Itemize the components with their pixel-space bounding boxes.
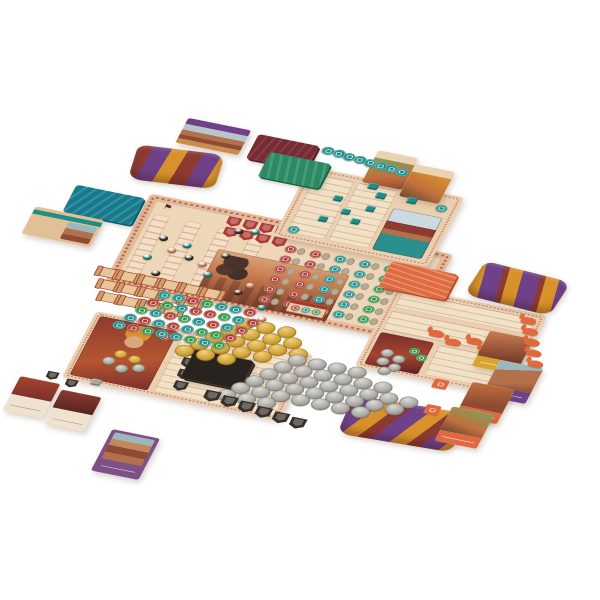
teal-bead-token: [142, 254, 153, 261]
green-disc-token: [194, 327, 210, 337]
teal-cube-token: [375, 192, 388, 200]
gray_oval-oval-token: [315, 263, 326, 271]
teal-disc-token: [286, 225, 301, 234]
red-disc-token: [233, 325, 249, 335]
gray_oval-oval-token: [344, 313, 355, 321]
teal-disc-token: [197, 337, 213, 347]
teal-disc-token: [219, 322, 235, 332]
gray_oval-oval-token: [365, 273, 376, 281]
teal-disc-token: [151, 318, 167, 328]
green-disc-token: [139, 326, 155, 336]
card-text-line: [101, 465, 136, 473]
gray_oval-oval-token: [349, 303, 360, 311]
red-disc-token: [185, 296, 201, 306]
green-disc-token: [216, 312, 232, 322]
teal-disc-token: [156, 290, 172, 300]
card-text-line: [52, 418, 83, 425]
black-shield-token: [171, 380, 189, 392]
teal-disc-token: [300, 306, 311, 313]
card-art: [52, 390, 101, 416]
gold-coin-token: [113, 349, 129, 359]
teal-disc-token: [191, 317, 207, 327]
gray_oval-oval-token: [340, 268, 351, 276]
orange-camel-token: [526, 359, 545, 369]
gray_oval-oval-token: [299, 293, 310, 301]
teal-cube-token: [406, 197, 419, 205]
gray_oval-oval-token: [305, 283, 316, 291]
gray_oval-oval-token: [359, 283, 370, 291]
gray_oval-oval-token: [310, 273, 321, 281]
teal-disc-token: [173, 303, 189, 313]
silver-cube-token: [90, 378, 103, 386]
red-disc-token: [245, 318, 261, 328]
black-shield-token: [253, 406, 274, 420]
teal-bead-token: [181, 242, 192, 249]
orange-camel-token: [444, 338, 463, 348]
green-disc-token: [159, 300, 175, 310]
teal-bead-token: [250, 228, 261, 235]
green-disc-token: [208, 330, 224, 340]
photo-table: ⚑ ✕: [0, 66, 600, 535]
red-disc-token: [162, 311, 178, 321]
card-art: [101, 432, 155, 466]
green-disc-token: [182, 334, 198, 344]
green-disc-token: [211, 340, 227, 350]
gray_oval-oval-token: [324, 298, 335, 306]
gray_oval-oval-token: [329, 288, 340, 296]
gray_oval-oval-token: [335, 278, 346, 286]
teal-disc-token: [179, 324, 195, 334]
board-game-product-photo: ⚑ ✕: [0, 0, 600, 600]
red-disc-token: [242, 307, 258, 317]
silver-coin-s-token: [101, 356, 117, 366]
red-disc-token: [205, 319, 221, 329]
teal-cube-token: [367, 182, 380, 190]
teal-disc-token: [170, 293, 186, 303]
red-disc-token: [165, 321, 181, 331]
black-shield-token: [44, 371, 60, 381]
gold-coin-token: [127, 355, 143, 365]
salmon-bead-token: [166, 247, 177, 254]
gray_oval-oval-token: [354, 293, 365, 301]
black-shield-token: [270, 411, 291, 425]
teal-disc-token: [227, 304, 243, 314]
market-cell: [331, 310, 356, 322]
gray_oval-oval-token: [370, 263, 381, 271]
black-bead-token: [183, 254, 194, 261]
teal-bead-token: [202, 271, 213, 278]
teal-disc-token: [434, 204, 449, 213]
black-bead-token: [220, 253, 231, 260]
black-bead-token: [233, 228, 244, 235]
red-disc-token: [222, 333, 238, 343]
card-text-line: [10, 404, 41, 411]
silver-coin-s-token: [130, 363, 146, 373]
salmon-bead-token: [245, 282, 256, 289]
teal-disc-token: [168, 332, 184, 342]
purple-portrait-card: [91, 429, 160, 480]
red-disc-token: [188, 306, 204, 316]
green-disc-token: [311, 309, 322, 316]
green-disc-token: [199, 299, 215, 309]
teal-disc-token: [148, 308, 164, 318]
black-bead-token: [158, 235, 169, 242]
gray_oval-oval-token: [320, 253, 331, 261]
teal-disc-token: [154, 329, 170, 339]
black-shield-token: [218, 395, 239, 409]
green-disc-token: [176, 314, 192, 324]
teal-disc-token: [213, 302, 229, 312]
silver-coin-s-token: [113, 364, 129, 374]
black-shield-token: [236, 400, 257, 414]
gray_oval-oval-token: [345, 258, 356, 266]
cloth-bag: [128, 145, 225, 189]
teal-disc-token: [230, 315, 246, 325]
black-shield-token: [63, 378, 79, 388]
red-disc-token: [202, 309, 218, 319]
black-shield-token: [287, 416, 308, 430]
black-shield-token: [201, 389, 222, 403]
red-disc-token: [290, 304, 301, 311]
salmon-bead-token: [197, 261, 208, 268]
